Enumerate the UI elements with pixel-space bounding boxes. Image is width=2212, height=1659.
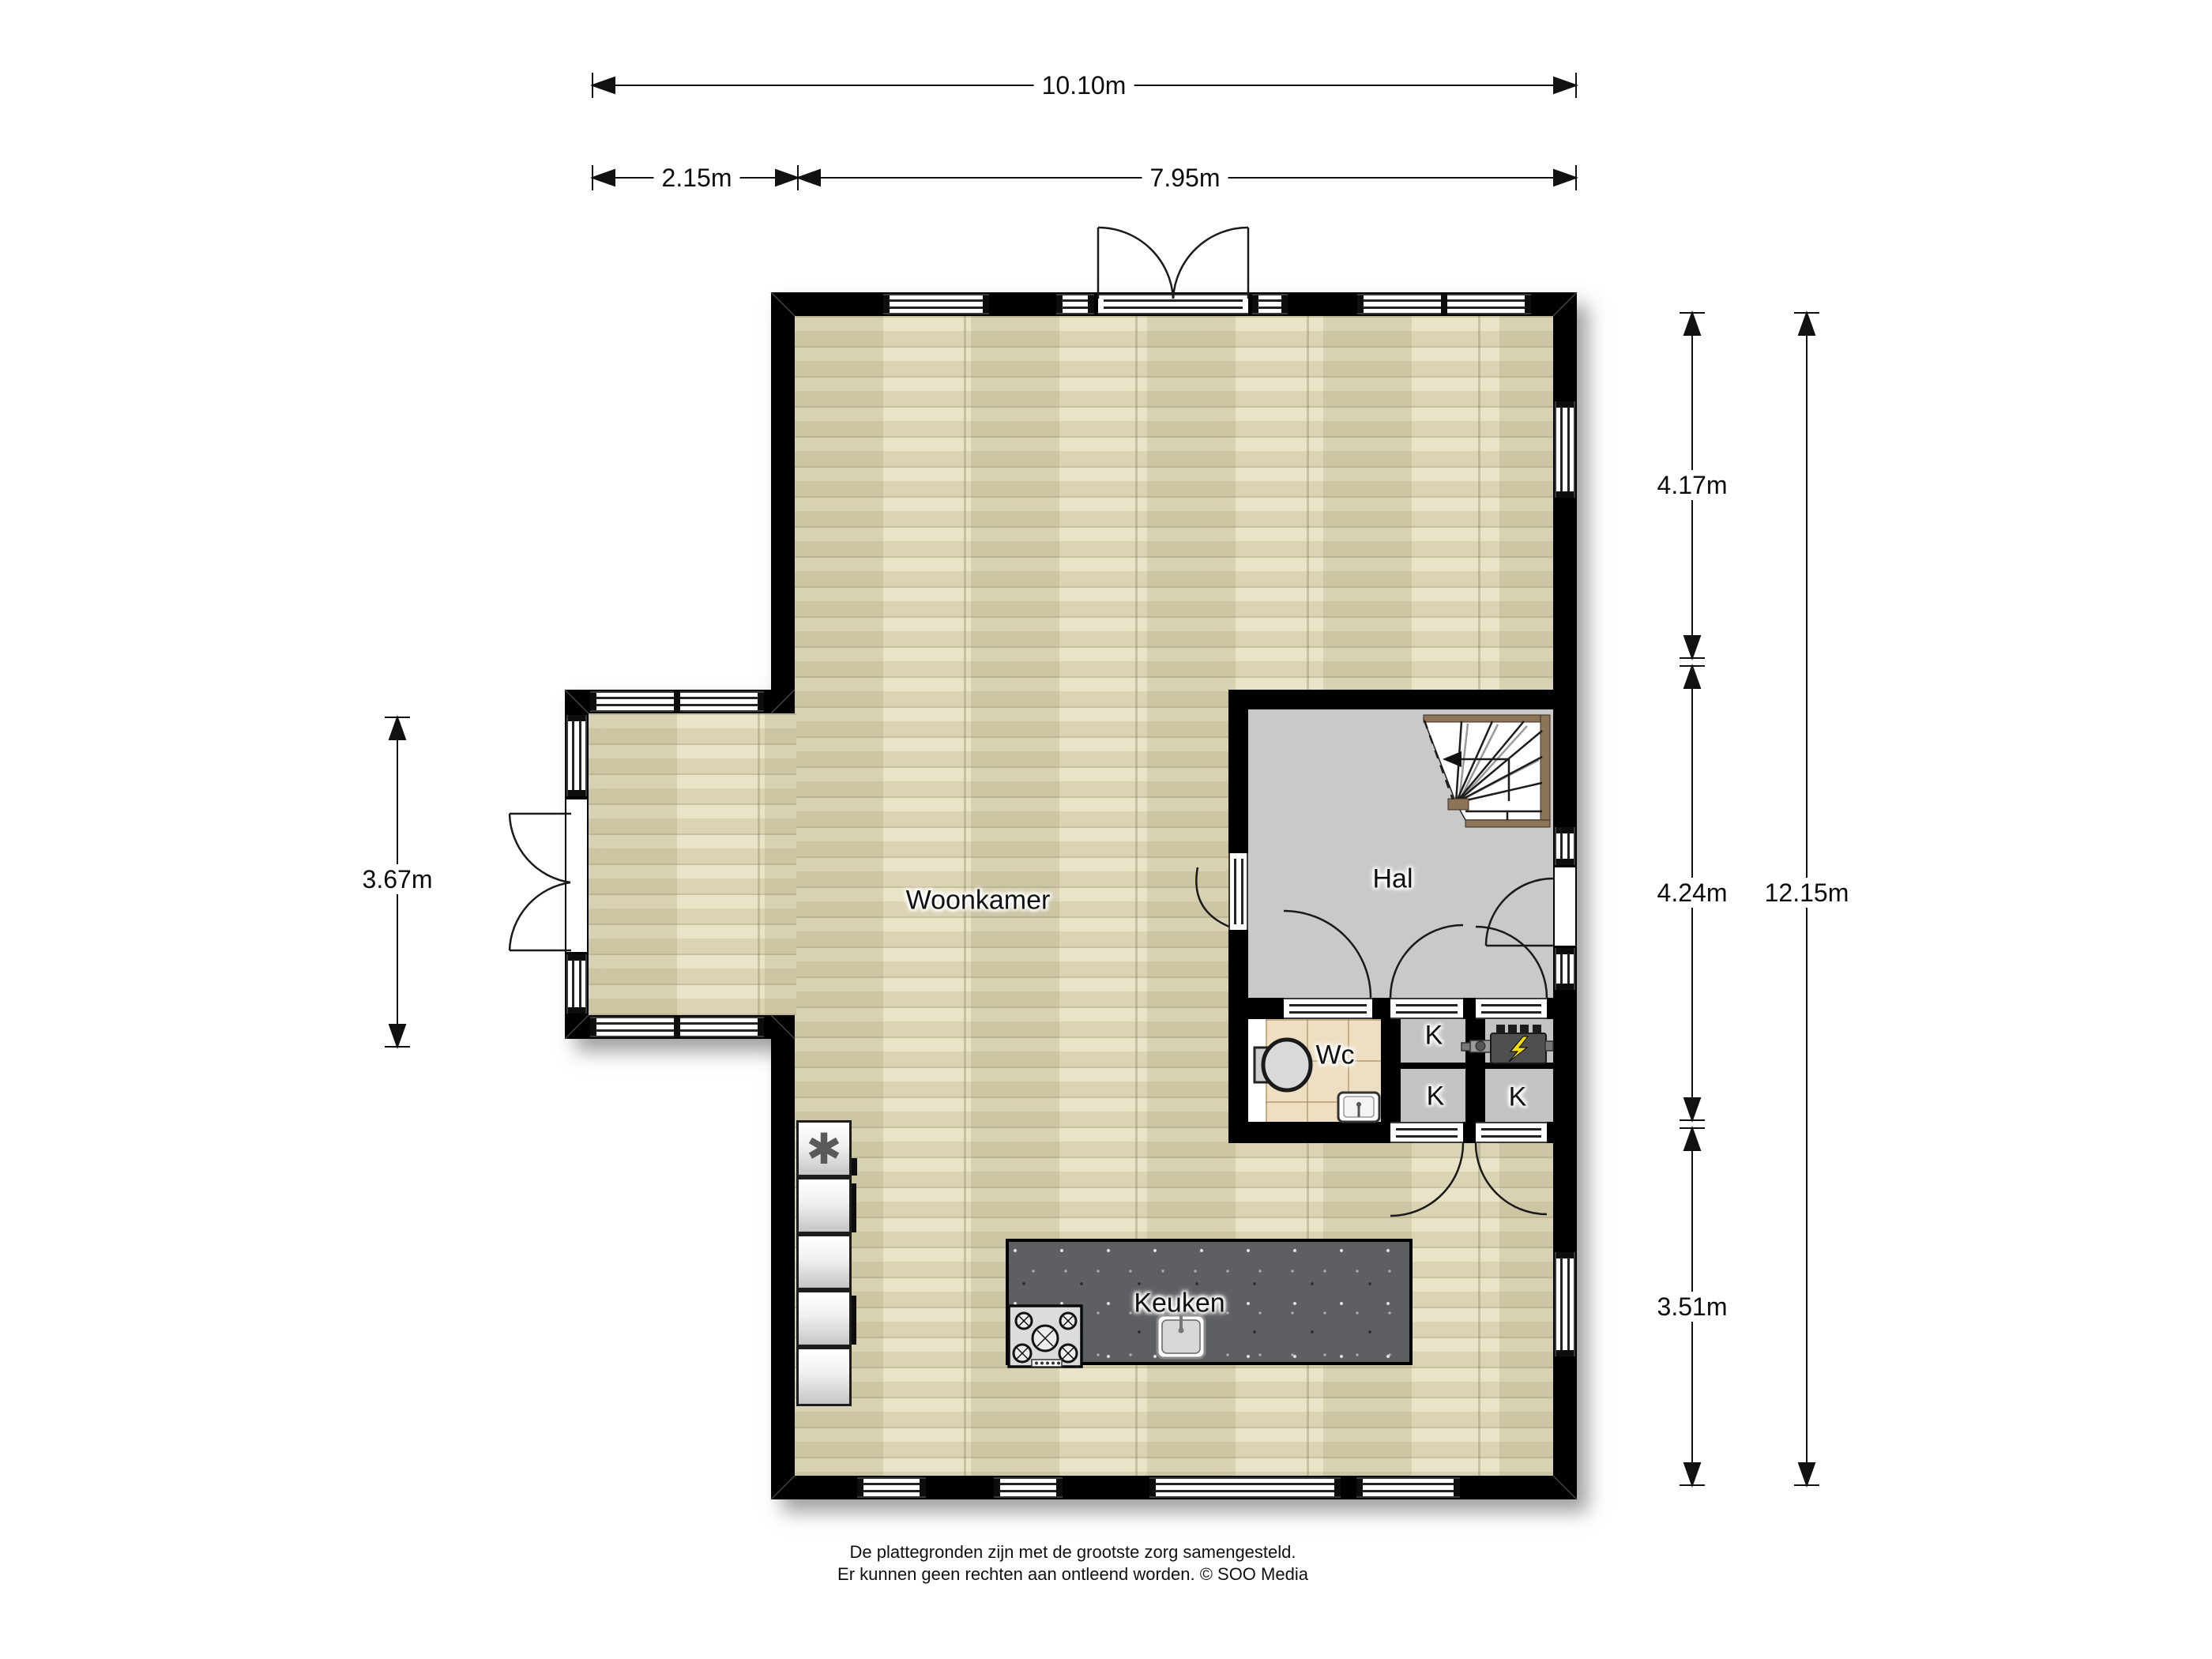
appliance-cabinet	[796, 1290, 852, 1347]
floor-hall	[1248, 709, 1553, 998]
dim-total-width: 10.10m	[1034, 70, 1134, 100]
floor-boiler-closet	[1485, 1019, 1553, 1063]
room-label-wc: Wc	[1315, 1040, 1354, 1071]
window	[1555, 401, 1575, 498]
window	[1555, 1252, 1575, 1356]
window	[566, 954, 587, 1014]
window	[1555, 948, 1575, 990]
window	[1356, 1477, 1460, 1498]
appliance-cabinet	[796, 1177, 852, 1234]
double-door-top	[1098, 228, 1248, 299]
room-label-closet-right: K	[1509, 1082, 1527, 1113]
room-label-hall: Hal	[1372, 864, 1413, 895]
appliance-handle	[852, 1158, 857, 1176]
wall-hall-top	[1228, 690, 1553, 709]
window	[857, 1477, 926, 1498]
room-label-kitchen: Keuken	[1134, 1288, 1224, 1319]
dim-bay-height: 3.67m	[355, 864, 441, 894]
freezer-icon: ✱	[796, 1120, 852, 1177]
window-mullion	[1441, 294, 1447, 314]
wall-closet-mid-right	[1485, 1063, 1553, 1069]
door-threshold-closet-south2	[1476, 1122, 1547, 1143]
appliance-handle	[852, 1296, 856, 1345]
wall-left-upper	[771, 292, 795, 713]
wall-left-lower	[771, 1015, 795, 1499]
floor-bay	[589, 713, 796, 1015]
window	[1056, 294, 1094, 314]
front-door-opening	[1555, 867, 1575, 946]
window	[1149, 1477, 1341, 1498]
dim-main-width: 7.95m	[1142, 163, 1228, 193]
window-mullion	[674, 1017, 680, 1037]
appliance-handle	[852, 1183, 856, 1232]
appliance-cabinet	[796, 1234, 852, 1290]
window	[566, 715, 587, 796]
door-threshold-boiler	[1476, 998, 1547, 1019]
window-mullion	[674, 691, 680, 712]
french-door-opening	[566, 799, 587, 952]
window	[1252, 294, 1288, 314]
dim-bay-width: 2.15m	[654, 163, 740, 193]
window	[994, 1477, 1063, 1498]
wall-closet-mid-left	[1401, 1063, 1465, 1069]
floor-wc-strip	[1248, 1019, 1266, 1122]
door-threshold-top	[1098, 294, 1248, 314]
door-threshold-wc	[1284, 998, 1372, 1019]
door-hall-living	[1228, 853, 1248, 930]
door-threshold-closet-south1	[1390, 1122, 1463, 1143]
window	[1555, 827, 1575, 865]
room-label-living: Woonkamer	[906, 886, 1051, 916]
freezer-symbol: ✱	[806, 1124, 841, 1174]
dim-right-bottom: 3.51m	[1650, 1292, 1736, 1322]
room-label-closet-top: K	[1425, 1021, 1443, 1051]
appliance-cabinet	[796, 1347, 852, 1406]
window	[883, 294, 989, 314]
door-threshold-closet	[1390, 998, 1463, 1019]
dim-right-top: 4.17m	[1650, 470, 1736, 500]
footer-disclaimer-line1: De plattegronden zijn met de grootste zo…	[850, 1542, 1296, 1563]
french-doors-bay	[510, 814, 571, 950]
dim-total-height: 12.15m	[1757, 878, 1857, 908]
dim-right-middle: 4.24m	[1650, 878, 1736, 908]
room-label-closet-bottom: K	[1427, 1082, 1445, 1112]
footer-disclaimer-line2: Er kunnen geen rechten aan ontleend word…	[837, 1564, 1308, 1585]
